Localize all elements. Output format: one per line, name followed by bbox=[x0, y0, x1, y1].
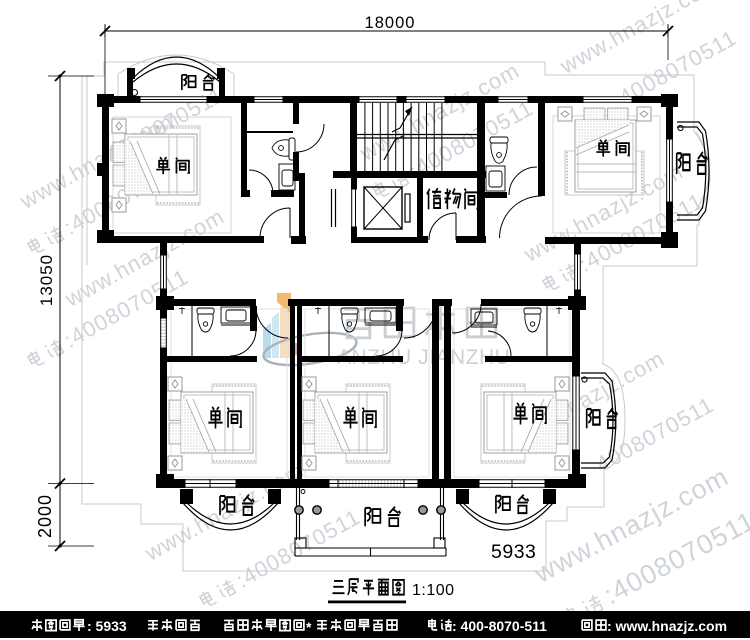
svg-text:*: * bbox=[306, 619, 312, 635]
svg-text:: www.hnazjz.com: : www.hnazjz.com bbox=[607, 618, 727, 634]
svg-text:: 5933: : 5933 bbox=[87, 618, 127, 634]
svg-text:2000: 2000 bbox=[35, 494, 55, 538]
svg-text:18000: 18000 bbox=[365, 14, 416, 32]
svg-text:1:100: 1:100 bbox=[412, 582, 455, 599]
svg-text:5933: 5933 bbox=[491, 541, 536, 563]
svg-text:13050: 13050 bbox=[37, 254, 56, 306]
svg-text:: 400-8070-511: : 400-8070-511 bbox=[452, 618, 547, 634]
